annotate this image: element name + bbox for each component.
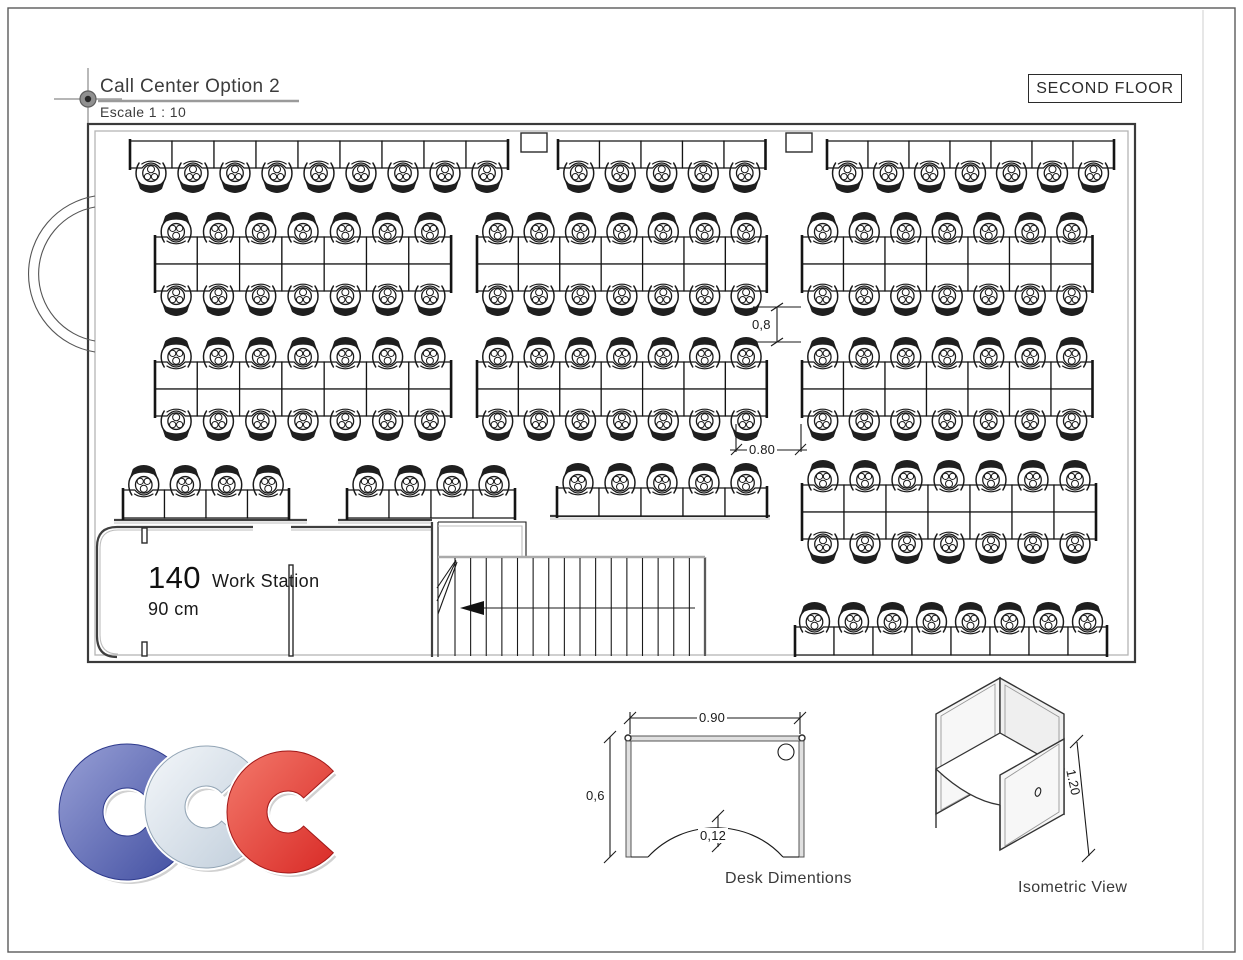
desk-width-label: 0.90	[697, 710, 727, 725]
workstation-size: 90 cm	[148, 599, 199, 620]
desk-cutout-label: 0,12	[698, 828, 728, 843]
aisle-dim-vertical-label: 0,8	[752, 317, 771, 332]
floor-label: SECOND FLOOR	[1028, 74, 1182, 103]
desk-depth-label: 0,6	[586, 788, 605, 803]
drawing-title: Call Center Option 2	[100, 76, 280, 98]
drawing-sheet: Call Center Option 2 Escale 1 : 10 SECON…	[0, 0, 1243, 960]
logo	[59, 744, 336, 884]
drawing-scale: Escale 1 : 10	[100, 104, 186, 120]
desk-diagram-caption: Desk Dimentions	[725, 870, 852, 888]
workstation-count: 140	[148, 560, 201, 596]
column	[786, 133, 812, 152]
isometric-caption: Isometric View	[1018, 879, 1127, 897]
workstation-unit: Work Station	[212, 571, 320, 592]
floorplan-drawing	[0, 0, 1243, 960]
door-arc	[39, 207, 95, 341]
column	[521, 133, 547, 152]
aisle-dim-horizontal-label: 0.80	[747, 442, 777, 457]
